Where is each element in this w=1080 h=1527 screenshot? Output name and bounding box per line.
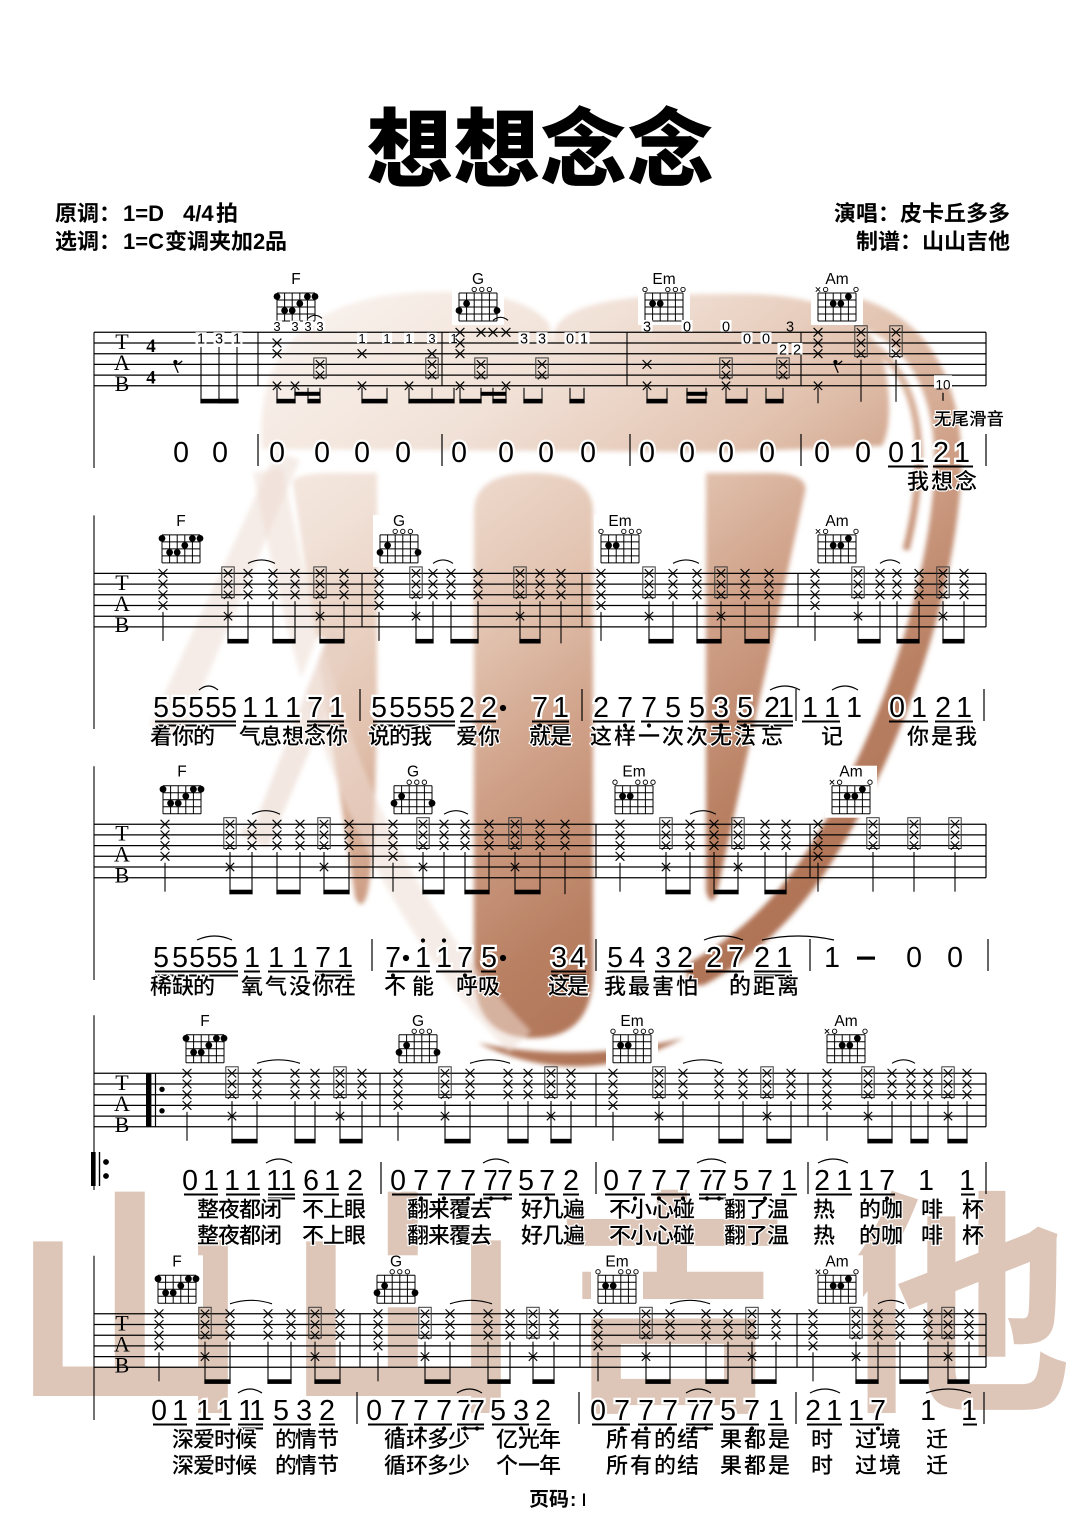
svg-text:1: 1 [826, 1395, 842, 1427]
svg-text:0: 0 [889, 692, 905, 724]
svg-text:1: 1 [858, 1165, 874, 1197]
svg-text:7: 7 [460, 1165, 476, 1197]
svg-text:G: G [390, 1253, 402, 1270]
svg-text:1: 1 [233, 332, 241, 348]
svg-text:5: 5 [189, 942, 205, 974]
svg-text:0: 0 [603, 1165, 619, 1197]
svg-text:7: 7 [413, 1395, 429, 1427]
svg-text:5: 5 [518, 1165, 534, 1197]
svg-text:3: 3 [713, 692, 729, 724]
svg-text:2: 2 [779, 342, 787, 358]
svg-text:Am: Am [834, 1013, 857, 1030]
svg-text:5: 5 [389, 692, 405, 724]
svg-text:2: 2 [253, 229, 265, 254]
svg-text:0: 0 [679, 437, 695, 469]
svg-text:0: 0 [762, 332, 770, 348]
svg-text:5: 5 [221, 692, 237, 724]
svg-text:0: 0 [212, 437, 228, 469]
svg-text:1: 1 [580, 332, 588, 348]
svg-text:7: 7 [307, 692, 323, 724]
svg-text:2: 2 [814, 1165, 830, 1197]
svg-text:4: 4 [146, 336, 156, 357]
svg-text:7: 7 [757, 1165, 773, 1197]
svg-text:7: 7 [614, 1395, 630, 1427]
svg-text:7: 7 [457, 942, 473, 974]
svg-text:1: 1 [824, 692, 840, 724]
svg-text:Am: Am [825, 1253, 848, 1270]
svg-text:7: 7 [641, 692, 657, 724]
svg-text:5: 5 [206, 942, 222, 974]
svg-text:1=D: 1=D [123, 201, 164, 226]
svg-text:G: G [393, 513, 405, 530]
svg-text:1: 1 [197, 332, 205, 348]
svg-text:2: 2 [933, 437, 949, 469]
svg-text:5: 5 [172, 942, 188, 974]
svg-text:G: G [407, 764, 419, 781]
svg-text:1: 1 [242, 692, 258, 724]
svg-text:0: 0 [538, 437, 554, 469]
svg-text:B: B [115, 371, 130, 396]
svg-text:3: 3 [316, 319, 323, 334]
svg-text:5: 5 [607, 942, 623, 974]
svg-text:5: 5 [423, 692, 439, 724]
svg-text:2: 2 [754, 942, 770, 974]
svg-text:5: 5 [490, 1395, 506, 1427]
svg-text:1: 1 [553, 692, 569, 724]
svg-text:1: 1 [846, 692, 862, 724]
svg-text:F: F [200, 1013, 209, 1030]
svg-text:0: 0 [906, 942, 922, 974]
svg-text:0: 0 [590, 1395, 606, 1427]
svg-text:2: 2 [677, 942, 693, 974]
svg-text:Am: Am [825, 271, 848, 288]
svg-text::: : [570, 1490, 576, 1511]
svg-text:2: 2 [935, 692, 951, 724]
svg-text:Em: Em [652, 271, 675, 288]
svg-text:3: 3 [538, 332, 546, 348]
svg-text:5: 5 [171, 692, 187, 724]
svg-text:F: F [172, 1253, 181, 1270]
svg-text:3: 3 [513, 1395, 529, 1427]
svg-text:5: 5 [665, 692, 681, 724]
svg-text:1: 1 [224, 1165, 240, 1197]
svg-text:3: 3 [655, 942, 671, 974]
svg-text:1: 1 [768, 1395, 784, 1427]
svg-text:0: 0 [354, 437, 370, 469]
svg-text:7: 7 [539, 1165, 555, 1197]
svg-text:B: B [115, 1352, 130, 1377]
svg-text:5: 5 [153, 942, 169, 974]
svg-text:1: 1 [911, 692, 927, 724]
svg-text:7: 7 [675, 1165, 691, 1197]
svg-text:1: 1 [824, 942, 840, 974]
svg-text:5: 5 [439, 692, 455, 724]
svg-text:1: 1 [802, 692, 818, 724]
svg-text:0: 0 [743, 332, 751, 348]
svg-text:Em: Em [620, 1013, 643, 1030]
svg-text:2: 2 [563, 1165, 579, 1197]
svg-text:F: F [177, 764, 186, 781]
svg-text:5: 5 [733, 1165, 749, 1197]
svg-text:0: 0 [314, 437, 330, 469]
svg-text:10: 10 [935, 377, 950, 392]
svg-text:7: 7 [436, 1395, 452, 1427]
svg-text:Am: Am [839, 764, 862, 781]
svg-text:1: 1 [383, 331, 390, 346]
svg-text:7: 7 [617, 692, 633, 724]
svg-text:0: 0 [947, 942, 963, 974]
svg-text:1: 1 [848, 1395, 864, 1427]
svg-text:0: 0 [888, 437, 904, 469]
svg-text:3: 3 [291, 319, 298, 334]
svg-text:7: 7 [390, 1395, 406, 1427]
svg-text:3: 3 [643, 320, 651, 336]
svg-text:0: 0 [814, 437, 830, 469]
svg-text:7: 7 [436, 1165, 452, 1197]
svg-text:1: 1 [249, 1395, 265, 1427]
svg-text:1: 1 [196, 1395, 212, 1427]
svg-text:B: B [115, 612, 130, 637]
svg-text:2: 2 [481, 692, 497, 724]
svg-text:1: 1 [776, 942, 792, 974]
svg-text:7: 7 [497, 1165, 513, 1197]
svg-text:1=C: 1=C [123, 229, 164, 254]
svg-text:2: 2 [706, 942, 722, 974]
svg-text:5: 5 [273, 1395, 289, 1427]
svg-text:B: B [115, 863, 130, 888]
svg-text:5: 5 [720, 1395, 736, 1427]
svg-text:Em: Em [622, 764, 645, 781]
svg-text:0: 0 [498, 437, 514, 469]
svg-text:0: 0 [718, 437, 734, 469]
svg-text:1: 1 [329, 692, 345, 724]
svg-text:0: 0 [451, 437, 467, 469]
svg-text:3: 3 [520, 332, 528, 348]
svg-text:7: 7 [662, 1395, 678, 1427]
svg-text:7: 7 [711, 1165, 727, 1197]
svg-text:2: 2 [347, 1165, 363, 1197]
svg-text:5: 5 [188, 692, 204, 724]
svg-text:5: 5 [371, 692, 387, 724]
svg-text:1: 1 [292, 942, 308, 974]
svg-text:7: 7 [728, 942, 744, 974]
svg-text:1: 1 [217, 1395, 233, 1427]
svg-text:5: 5 [222, 942, 238, 974]
svg-text:0: 0 [855, 437, 871, 469]
svg-text:1: 1 [909, 437, 925, 469]
svg-text:7: 7 [315, 942, 331, 974]
svg-text:0: 0 [390, 1165, 406, 1197]
svg-text:1: 1 [405, 331, 412, 346]
svg-text:4: 4 [570, 942, 586, 974]
svg-text:4: 4 [146, 367, 156, 388]
svg-text:1: 1 [244, 942, 260, 974]
svg-text:3: 3 [296, 1395, 312, 1427]
svg-text:3: 3 [215, 332, 223, 348]
svg-text:Em: Em [605, 1253, 628, 1270]
svg-text:1: 1 [172, 1395, 188, 1427]
svg-text:5: 5 [689, 692, 705, 724]
svg-text:0: 0 [395, 437, 411, 469]
svg-text:1: 1 [436, 942, 452, 974]
svg-text:0: 0 [151, 1395, 167, 1427]
svg-text:3: 3 [304, 319, 311, 334]
svg-text:1: 1 [285, 692, 301, 724]
svg-text:1: 1 [920, 1395, 936, 1427]
svg-text:G: G [412, 1013, 424, 1030]
svg-text:4/4: 4/4 [183, 201, 214, 226]
svg-text:0: 0 [269, 437, 285, 469]
svg-text:G: G [472, 271, 484, 288]
svg-text:5: 5 [481, 942, 497, 974]
svg-text:0: 0 [566, 332, 574, 348]
svg-text:1: 1 [415, 942, 431, 974]
svg-text:2: 2 [593, 692, 609, 724]
svg-text:1: 1 [358, 331, 365, 346]
svg-text:7: 7 [651, 1165, 667, 1197]
svg-text:1: 1 [961, 1395, 977, 1427]
svg-text:3: 3 [786, 319, 794, 335]
svg-text:1: 1 [781, 1165, 797, 1197]
svg-text:1: 1 [836, 1165, 852, 1197]
svg-text:0: 0 [683, 320, 691, 336]
svg-text:7: 7 [627, 1165, 643, 1197]
svg-text:7: 7 [469, 1395, 485, 1427]
svg-text:1: 1 [203, 1165, 219, 1197]
svg-text:0: 0 [759, 437, 775, 469]
svg-text:5: 5 [205, 692, 221, 724]
svg-text:Am: Am [825, 513, 848, 530]
svg-text:F: F [291, 271, 300, 288]
svg-text:1: 1 [268, 942, 284, 974]
svg-text:F: F [176, 513, 185, 530]
svg-text:2: 2 [805, 1395, 821, 1427]
svg-text:2: 2 [459, 692, 475, 724]
svg-text:7: 7 [413, 1165, 429, 1197]
svg-text:3: 3 [428, 331, 435, 346]
svg-text:7: 7 [870, 1395, 886, 1427]
svg-text:1: 1 [918, 1165, 934, 1197]
svg-text:6: 6 [303, 1165, 319, 1197]
svg-text:0: 0 [366, 1395, 382, 1427]
svg-text:2: 2 [793, 342, 801, 358]
svg-text:4: 4 [629, 942, 645, 974]
svg-text:3: 3 [273, 319, 280, 334]
svg-text:1: 1 [263, 692, 279, 724]
svg-text:1: 1 [954, 437, 970, 469]
svg-text:7: 7 [532, 692, 548, 724]
svg-text:5: 5 [406, 692, 422, 724]
svg-text:0: 0 [580, 437, 596, 469]
svg-text:2: 2 [535, 1395, 551, 1427]
svg-text:7: 7 [385, 942, 401, 974]
svg-text:7: 7 [698, 1395, 714, 1427]
svg-text:2: 2 [319, 1395, 335, 1427]
svg-text:0: 0 [182, 1165, 198, 1197]
svg-text:0: 0 [639, 437, 655, 469]
svg-text:1: 1 [778, 692, 794, 724]
svg-text:0: 0 [173, 437, 189, 469]
svg-text:7: 7 [638, 1395, 654, 1427]
svg-text:7: 7 [744, 1395, 760, 1427]
svg-text:5: 5 [737, 692, 753, 724]
svg-text:1: 1 [956, 692, 972, 724]
svg-text:1: 1 [959, 1165, 975, 1197]
svg-text:1: 1 [324, 1165, 340, 1197]
svg-text:1: 1 [337, 942, 353, 974]
svg-text:0: 0 [722, 320, 730, 336]
svg-text:1: 1 [280, 1165, 296, 1197]
svg-text:3: 3 [551, 942, 567, 974]
svg-text:7: 7 [879, 1165, 895, 1197]
svg-text:1: 1 [245, 1165, 261, 1197]
svg-text:B: B [115, 1112, 130, 1137]
svg-text:5: 5 [153, 692, 169, 724]
svg-text:Em: Em [608, 513, 631, 530]
